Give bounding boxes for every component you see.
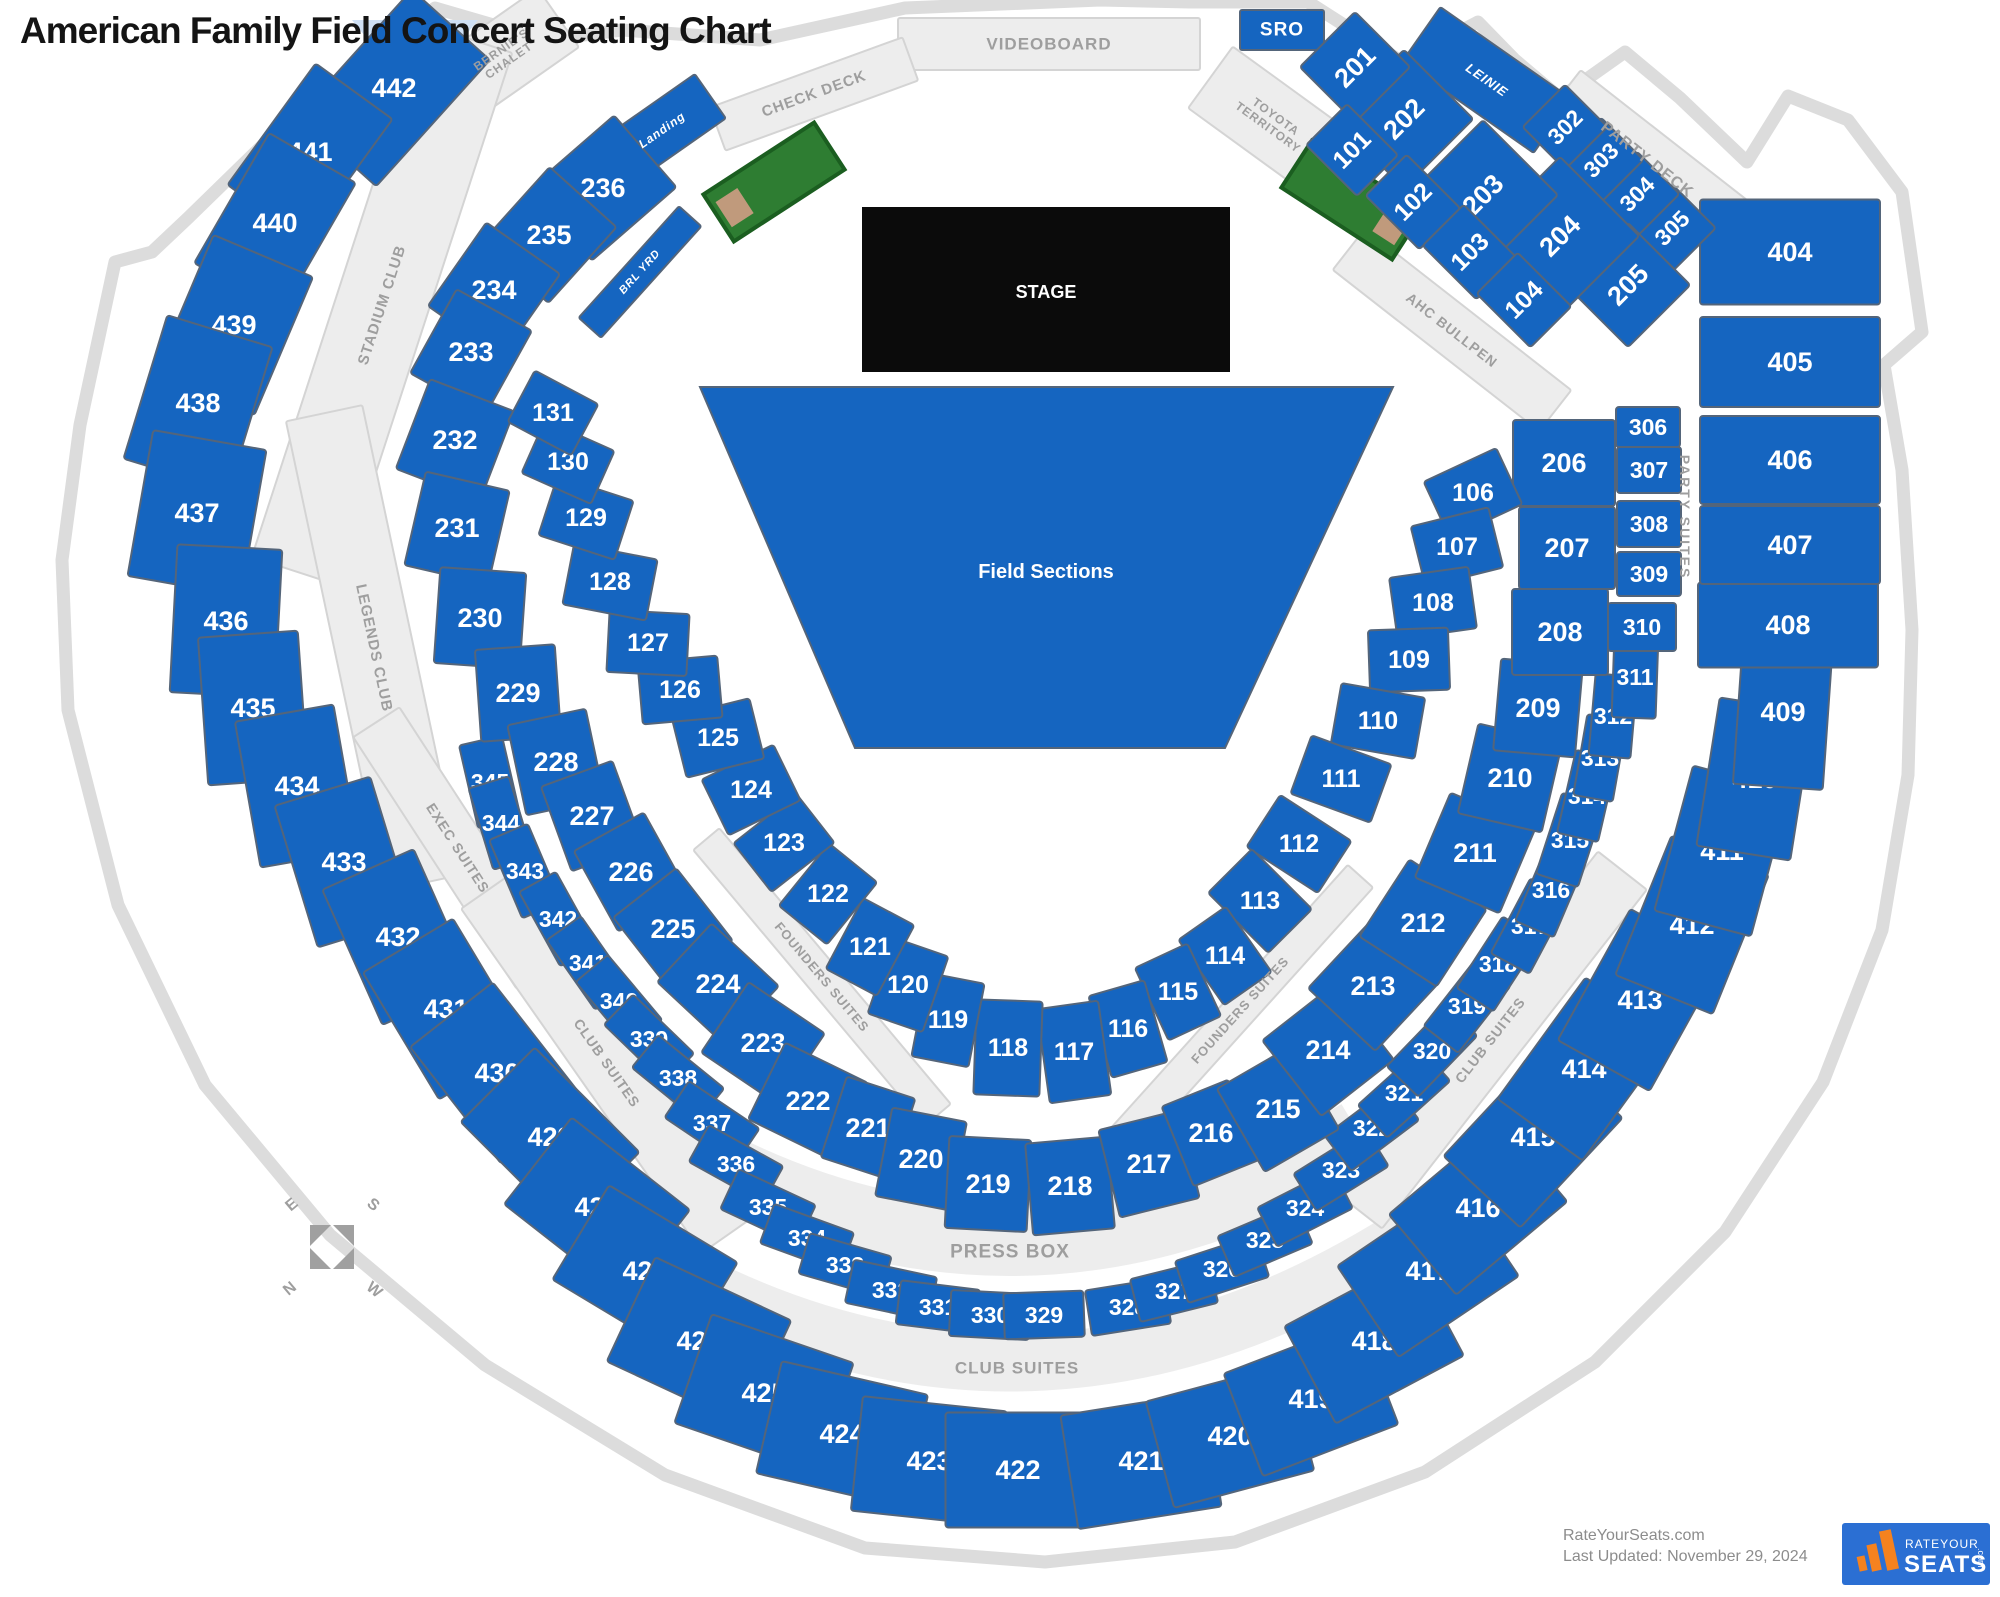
rateyourseats-logo[interactable]: RATEYOUR SEATS .com — [1842, 1523, 1990, 1585]
section-206-label: 206 — [1541, 448, 1586, 478]
section-116-label: 116 — [1108, 1015, 1148, 1043]
section-343-label: 343 — [506, 858, 544, 884]
section-407-label: 407 — [1767, 530, 1812, 560]
section-213-label: 213 — [1350, 971, 1395, 1001]
logo-seats-text: SEATS — [1904, 1551, 1987, 1578]
section-229-label: 229 — [495, 678, 540, 708]
section-309-label: 309 — [1630, 561, 1668, 587]
section-311-label: 311 — [1616, 664, 1653, 690]
section-307-label: 307 — [1630, 457, 1668, 483]
section-117-label: 117 — [1054, 1038, 1094, 1066]
section-406-label: 406 — [1767, 445, 1812, 475]
section-109-label: 109 — [1388, 646, 1430, 674]
club-suites-lower-label: CLUB SUITES — [955, 1359, 1079, 1378]
section-438-label: 438 — [175, 388, 220, 418]
section-121-label: 121 — [849, 933, 891, 961]
section-405-label: 405 — [1767, 347, 1812, 377]
section-123-label: 123 — [763, 829, 805, 857]
section-122-label: 122 — [807, 880, 849, 908]
section-115-label: 115 — [1158, 978, 1198, 1006]
section-208-label: 208 — [1537, 617, 1582, 647]
section-110-label: 110 — [1358, 707, 1398, 735]
section-310-label: 310 — [1623, 614, 1661, 640]
page-title: American Family Field Concert Seating Ch… — [20, 10, 771, 52]
section-120-label: 120 — [887, 971, 929, 999]
section-108-label: 108 — [1412, 589, 1454, 617]
section-227-label: 227 — [569, 801, 614, 831]
section-125-label: 125 — [697, 724, 739, 752]
section-221-label: 221 — [845, 1113, 890, 1143]
section-216-label: 216 — [1188, 1118, 1233, 1148]
section-437-label: 437 — [174, 498, 219, 528]
section-329-label: 329 — [1025, 1302, 1063, 1328]
section-232-label: 232 — [432, 425, 477, 455]
section-219-label: 219 — [965, 1169, 1010, 1199]
section-223-label: 223 — [740, 1028, 785, 1058]
section-210-label: 210 — [1487, 763, 1532, 793]
section-214-label: 214 — [1305, 1035, 1350, 1065]
section-306-label: 306 — [1629, 414, 1667, 440]
section-440-label: 440 — [252, 208, 297, 238]
section-226-label: 226 — [608, 857, 653, 887]
sro-label: SRO — [1260, 20, 1304, 41]
logo-rateyour-text: RATEYOUR — [1905, 1537, 1979, 1551]
section-236-label: 236 — [580, 173, 625, 203]
section-233-label: 233 — [448, 337, 493, 367]
section-114-label: 114 — [1205, 942, 1245, 970]
section-212-label: 212 — [1400, 908, 1445, 938]
section-119-label: 119 — [928, 1006, 968, 1034]
section-408-label: 408 — [1765, 610, 1810, 640]
section-215-label: 215 — [1255, 1094, 1300, 1124]
section-113-label: 113 — [1240, 887, 1280, 915]
section-442-label: 442 — [371, 73, 416, 103]
section-230-label: 230 — [457, 603, 502, 633]
section-436-label: 436 — [203, 606, 248, 636]
section-422-label: 422 — [995, 1455, 1040, 1485]
section-127-label: 127 — [627, 629, 669, 657]
stage-label: STAGE — [1016, 282, 1077, 302]
section-224-label: 224 — [695, 969, 740, 999]
section-128-label: 128 — [589, 568, 631, 596]
section-228-label: 228 — [533, 747, 578, 777]
section-231-label: 231 — [434, 513, 479, 543]
section-126-label: 126 — [659, 676, 701, 704]
logo-com-text: .com — [1976, 1548, 1986, 1568]
section-308-label: 308 — [1630, 511, 1669, 537]
field-sections-label: Field Sections — [978, 561, 1114, 583]
section-421-label: 421 — [1118, 1446, 1163, 1476]
videoboard-label: VIDEOBOARD — [986, 35, 1111, 54]
section-217-label: 217 — [1126, 1149, 1171, 1179]
press-box-label: PRESS BOX — [950, 1242, 1070, 1263]
footer-site[interactable]: RateYourSeats.com — [1563, 1527, 1705, 1544]
section-129-label: 129 — [565, 504, 607, 532]
section-220-label: 220 — [898, 1144, 943, 1174]
section-211-label: 211 — [1453, 838, 1497, 868]
section-225-label: 225 — [650, 914, 695, 944]
footer-updated: Last Updated: November 29, 2024 — [1563, 1548, 1808, 1565]
section-124-label: 124 — [730, 776, 772, 804]
section-131-label: 131 — [532, 399, 574, 427]
section-107-label: 107 — [1436, 533, 1478, 561]
section-404-label: 404 — [1767, 237, 1812, 267]
section-235-label: 235 — [526, 220, 571, 250]
section-218-label: 218 — [1047, 1171, 1092, 1201]
compass-n: N — [280, 1279, 300, 1299]
section-222-label: 222 — [785, 1086, 830, 1116]
section-409-label: 409 — [1760, 697, 1805, 727]
section-112-label: 112 — [1279, 830, 1319, 858]
section-118-label: 118 — [988, 1034, 1028, 1062]
party-suites-label: PARTY SUITES — [1677, 455, 1693, 580]
section-209-label: 209 — [1515, 693, 1560, 723]
section-106-label: 106 — [1452, 479, 1494, 507]
section-111-label: 111 — [1322, 765, 1361, 793]
section-207-label: 207 — [1544, 533, 1589, 563]
